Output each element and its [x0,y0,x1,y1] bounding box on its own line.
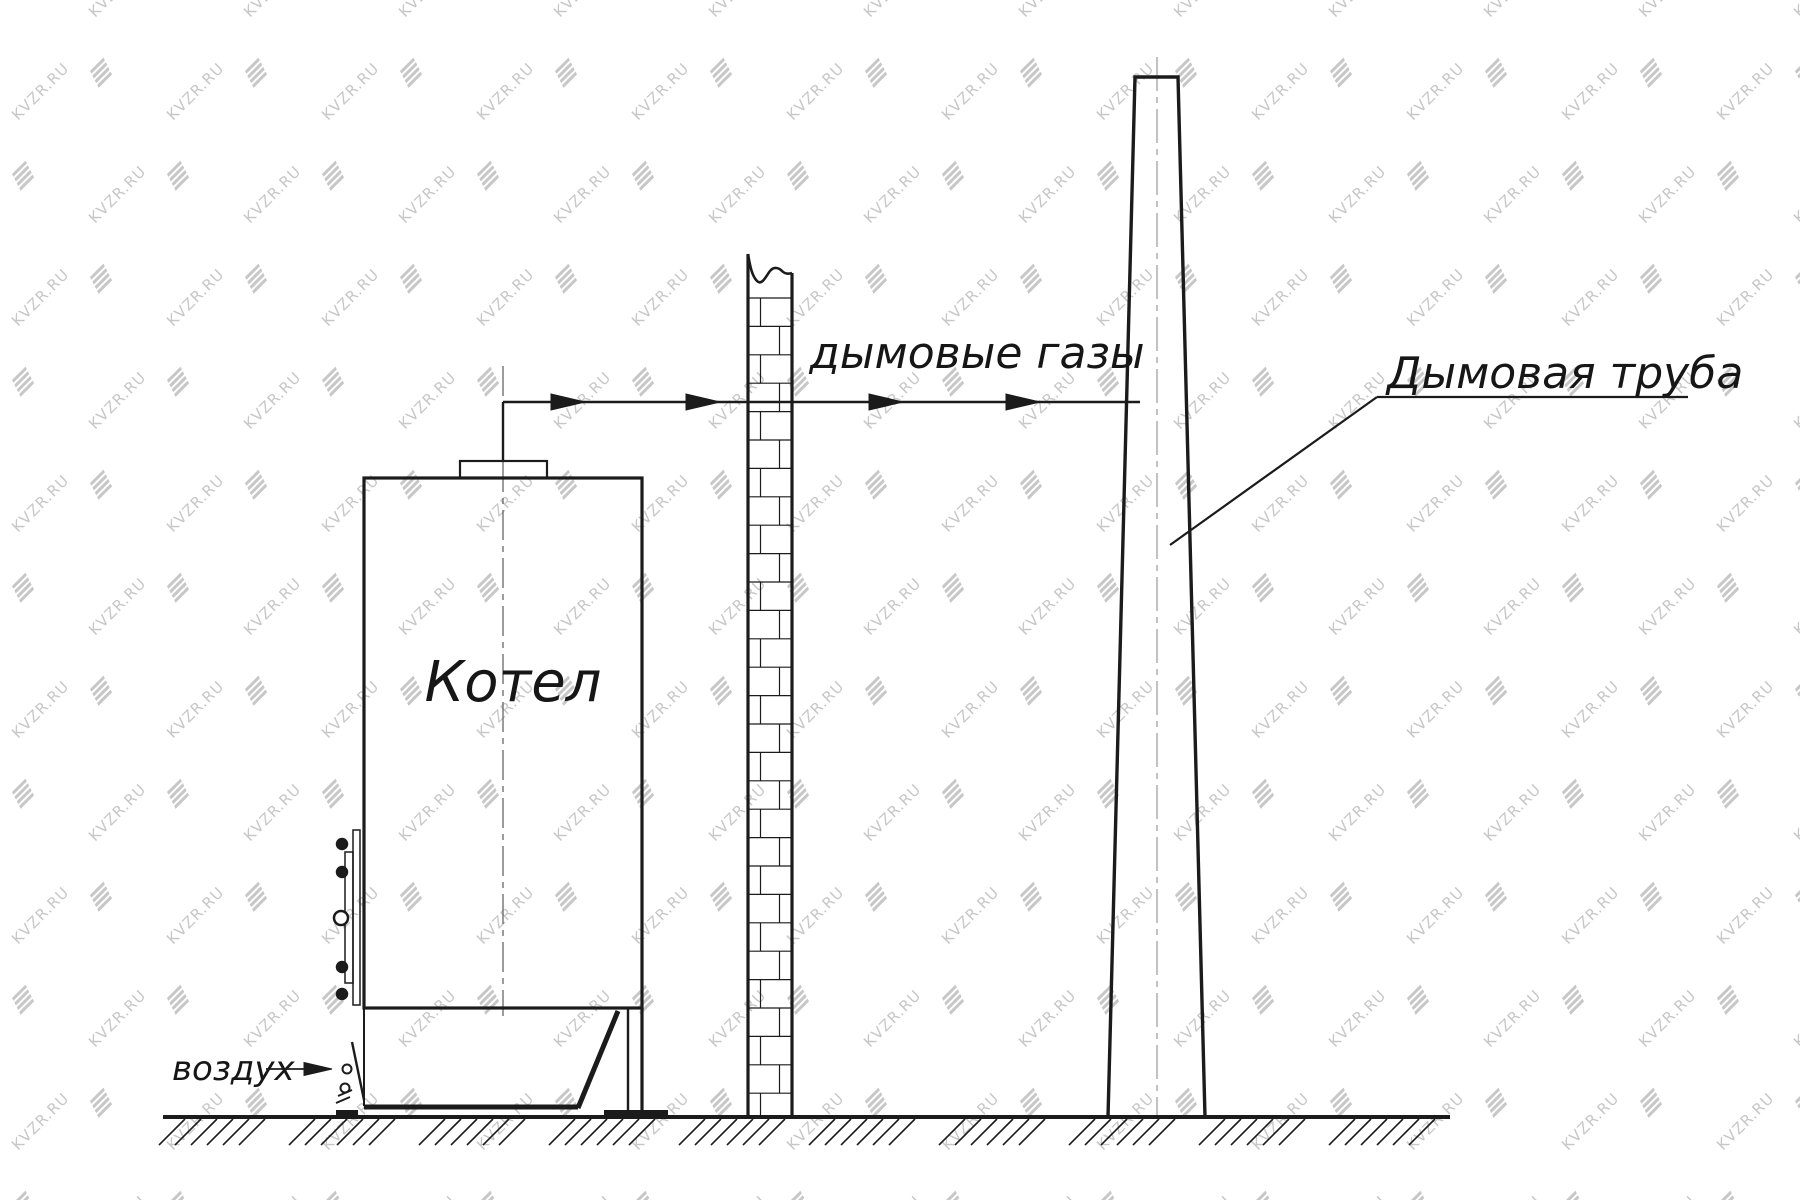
watermark-text: KVZR.RU [1015,986,1080,1051]
ground-hatch-stroke [987,1119,1013,1145]
watermark-logo-icon [90,1088,112,1118]
watermark-logo-icon [400,264,422,294]
ground-hatch-stroke [711,1119,737,1145]
watermark-logo-icon [1562,161,1584,191]
watermark-logo-icon [555,264,577,294]
watermark-logo-icon [1485,676,1507,706]
ground-hatch-stroke [825,1119,851,1145]
watermark-text: KVZR.RU [1480,986,1545,1051]
watermark-text: KVZR.RU [395,574,460,639]
watermark-text: KVZR.RU [1325,574,1390,639]
watermark-logo-icon [322,161,344,191]
watermark-text: KVZR.RU [1635,780,1700,845]
watermark-text: KVZR.RU [1790,986,1800,1051]
watermark-text: KVZR.RU [395,1192,460,1200]
watermark-logo-icon [787,367,809,397]
door-handle [334,911,348,925]
ground-hatch-stroke [597,1119,623,1145]
watermark-text: KVZR.RU [1093,59,1158,124]
ground-hatch-stroke [207,1119,233,1145]
watermark-logo-icon [477,573,499,603]
watermark-logo-icon [245,882,267,912]
watermark-logo-icon [1020,1088,1042,1118]
watermark-text: KVZR.RU [395,780,460,845]
watermark-text: KVZR.RU [473,883,538,948]
watermark-logo-icon [1252,367,1274,397]
watermark-logo-icon [12,573,34,603]
watermark-logo-icon [90,882,112,912]
watermark-text: KVZR.RU [240,368,305,433]
watermark-text: KVZR.RU [1403,471,1468,536]
watermark-text: KVZR.RU [1325,162,1390,227]
watermark-logo-icon [1175,264,1197,294]
watermark-logo-icon [90,264,112,294]
watermark-text: KVZR.RU [473,265,538,330]
watermark-logo-icon [1097,161,1119,191]
watermark-text: KVZR.RU [85,0,150,21]
watermark-text: KVZR.RU [1790,780,1800,845]
watermark-logo-icon [12,161,34,191]
smoke-arrowhead [686,394,720,410]
watermark-logo-icon [1407,1191,1429,1200]
watermark-logo-icon [400,1088,422,1118]
watermark-logo-icon [477,367,499,397]
watermark-text: KVZR.RU [1403,265,1468,330]
watermark-text: KVZR.RU [1093,265,1158,330]
watermark-text: KVZR.RU [628,471,693,536]
watermark-text: KVZR.RU [860,780,925,845]
watermark-logo-icon [1717,573,1739,603]
watermark-logo-icon [1795,58,1800,88]
watermark-logo-icon [1175,1088,1197,1118]
watermark-logo-icon [787,779,809,809]
watermark-text: KVZR.RU [550,1192,615,1200]
ground-hatch-stroke [873,1119,899,1145]
watermark-logo-icon [710,1088,732,1118]
watermark-logo-icon [1717,985,1739,1015]
watermark-logo-icon [710,882,732,912]
watermark-logo-icon [90,58,112,88]
watermark-logo-icon [322,367,344,397]
watermark-text: KVZR.RU [163,883,228,948]
watermark-logo-icon [632,161,654,191]
watermark-text: KVZR.RU [1635,574,1700,639]
watermark-logo-icon [167,573,189,603]
watermark-text: KVZR.RU [1713,1089,1778,1154]
watermark-text: KVZR.RU [1558,265,1623,330]
ground-hatch-stroke [759,1119,785,1145]
watermark-text: KVZR.RU [705,162,770,227]
watermark-text: KVZR.RU [1325,368,1390,433]
watermark-logo-icon [942,985,964,1015]
ground-hatch-stroke [581,1119,607,1145]
watermark-logo-icon [1407,573,1429,603]
watermark-text: KVZR.RU [1713,265,1778,330]
watermark-text: KVZR.RU [1790,368,1800,433]
watermark-text: KVZR.RU [860,1192,925,1200]
watermark-text: KVZR.RU [395,0,460,21]
watermark-logo-icon [1252,573,1274,603]
watermark-text: KVZR.RU [85,780,150,845]
watermark-text: KVZR.RU [1248,265,1313,330]
ground-hatch-stroke [1003,1119,1029,1145]
watermark-text: KVZR.RU [1170,1192,1235,1200]
watermark-logo-icon [322,573,344,603]
watermark-text: KVZR.RU [8,883,73,948]
watermark-text: KVZR.RU [1558,59,1623,124]
watermark-logo-icon [167,985,189,1015]
ground-hatch-stroke [549,1119,575,1145]
watermark-logo-icon [1485,58,1507,88]
watermark-logo-icon [1330,882,1352,912]
watermark-logo-icon [1795,470,1800,500]
watermark-logo-icon [90,470,112,500]
watermark-logo-icon [942,573,964,603]
watermark-text: KVZR.RU [473,59,538,124]
watermark-logo-icon [167,367,189,397]
watermark-text: KVZR.RU [1015,780,1080,845]
watermark-text: KVZR.RU [1480,780,1545,845]
watermark-logo-icon [1640,882,1662,912]
ground-hatch-stroke [565,1119,591,1145]
watermark-text: KVZR.RU [395,162,460,227]
watermark-text: KVZR.RU [1325,0,1390,21]
watermark-logo-icon [1407,161,1429,191]
watermark-logo-icon [1562,779,1584,809]
watermark-logo-icon [942,779,964,809]
watermark-text: KVZR.RU [1558,471,1623,536]
watermark-text: KVZR.RU [1170,368,1235,433]
watermark-logo-icon [1330,264,1352,294]
watermark-logo-icon [477,985,499,1015]
watermark-text: KVZR.RU [1093,677,1158,742]
watermark-text: KVZR.RU [318,677,383,742]
watermark-text: KVZR.RU [938,883,1003,948]
watermark-logo-icon [1485,882,1507,912]
watermark-logo-icon [710,58,732,88]
watermark-logo-icon [167,161,189,191]
watermark-logo-icon [1640,1088,1662,1118]
ground-hatch-stroke [857,1119,883,1145]
watermark-logo-icon [245,58,267,88]
watermark-text: KVZR.RU [1790,0,1800,21]
watermark-logo-icon [787,985,809,1015]
watermark-text: KVZR.RU [395,368,460,433]
watermark-logo-icon [1640,264,1662,294]
watermark-text: KVZR.RU [1635,0,1700,21]
watermark-text: KVZR.RU [1325,780,1390,845]
watermark-logo-icon [555,470,577,500]
watermark-text: KVZR.RU [1403,59,1468,124]
ground-hatch-stroke [1329,1119,1355,1145]
watermark-text: KVZR.RU [1015,1192,1080,1200]
watermark-text: KVZR.RU [85,574,150,639]
watermark-text: KVZR.RU [1325,1192,1390,1200]
boiler-chimney-technical-diagram: KVZR.RUKVZR.RUKVZR.RUKVZR.RUKVZR.RUKVZR.… [0,0,1800,1200]
watermark-logo-icon [1175,470,1197,500]
watermark-logo-icon [1640,470,1662,500]
ground-hatch-stroke [223,1119,249,1145]
boiler-label: Котел [425,650,602,715]
watermark-logo-icon [12,985,34,1015]
watermark-logo-icon [1330,58,1352,88]
watermark-text: KVZR.RU [860,574,925,639]
ground-hatch-stroke [1215,1119,1241,1145]
watermark-logo-icon [865,470,887,500]
watermark-text: KVZR.RU [318,265,383,330]
watermark-logo-icon [555,882,577,912]
ground-hatch-stroke [889,1119,915,1145]
watermark-logo-icon [1330,1088,1352,1118]
watermark-text: KVZR.RU [1635,1192,1700,1200]
watermark-text: KVZR.RU [240,162,305,227]
ground-hatch-stroke [1149,1119,1175,1145]
watermark-text: KVZR.RU [1790,162,1800,227]
watermark-logo-icon [1717,161,1739,191]
watermark-text: KVZR.RU [938,59,1003,124]
ground-hatch-stroke [289,1119,315,1145]
watermark-text: KVZR.RU [1170,574,1235,639]
watermark-text: KVZR.RU [1248,677,1313,742]
watermark-logo-icon [710,264,732,294]
watermark-text: KVZR.RU [1248,471,1313,536]
ground-hatch-stroke [1199,1119,1225,1145]
chimney-label: Дымовая труба [1385,348,1743,399]
watermark-logo-icon [1795,882,1800,912]
watermark-logo-icon [1097,985,1119,1015]
watermark-logo-icon [1485,470,1507,500]
watermark-logo-icon [787,573,809,603]
watermark-text: KVZR.RU [1015,574,1080,639]
watermark-logo-icon [1640,676,1662,706]
watermark-logo-icon [322,1191,344,1200]
watermark-text: KVZR.RU [1713,883,1778,948]
watermark-text: KVZR.RU [1790,574,1800,639]
watermark-text: KVZR.RU [1480,0,1545,21]
watermark-logo-icon [1330,676,1352,706]
ground-hatch-stroke [727,1119,753,1145]
ground-hatch-stroke [435,1119,461,1145]
watermark-text: KVZR.RU [628,1089,693,1154]
ground-hatch-stroke [743,1119,769,1145]
watermark-logo-icon [1252,161,1274,191]
watermark-text: KVZR.RU [938,1089,1003,1154]
air-damper [336,1042,364,1103]
watermark-logo-icon [787,161,809,191]
watermark-text: KVZR.RU [240,1192,305,1200]
watermark-text: KVZR.RU [318,471,383,536]
watermark-text: KVZR.RU [1170,0,1235,21]
watermark-logo-icon [1562,573,1584,603]
watermark-text: KVZR.RU [860,0,925,21]
watermark-logo-icon [1020,470,1042,500]
ground-hatch-stroke [1345,1119,1371,1145]
watermark-text: KVZR.RU [1480,162,1545,227]
watermark-text: KVZR.RU [1635,986,1700,1051]
watermark-logo-icon [90,676,112,706]
watermark-text: KVZR.RU [1403,677,1468,742]
watermark-text: KVZR.RU [85,1192,150,1200]
watermark-text: KVZR.RU [395,986,460,1051]
watermark-text: KVZR.RU [473,471,538,536]
watermark-text: KVZR.RU [163,471,228,536]
watermark-logo-icon [245,264,267,294]
watermark-text: KVZR.RU [1480,574,1545,639]
watermark-logo-icon [1020,676,1042,706]
watermark-text: KVZR.RU [1325,986,1390,1051]
watermark-logo-icon [245,1088,267,1118]
watermark-logo-icon [555,58,577,88]
watermark-text: KVZR.RU [1015,0,1080,21]
watermark-text: KVZR.RU [550,574,615,639]
watermark-text: KVZR.RU [318,883,383,948]
watermark-text: KVZR.RU [8,471,73,536]
watermark-logo-icon [322,779,344,809]
watermark-logo-icon [1020,58,1042,88]
ground-hatch-stroke [1069,1119,1095,1145]
watermark-logo-icon [477,161,499,191]
ground-hatch-stroke [1133,1119,1159,1145]
watermark-text: KVZR.RU [1558,883,1623,948]
watermark-text: KVZR.RU [550,162,615,227]
watermark-text: KVZR.RU [1558,677,1623,742]
watermark-logo-icon [1795,676,1800,706]
watermark-text: KVZR.RU [85,368,150,433]
watermark-logo-icon [865,1088,887,1118]
boiler-base [336,1008,668,1113]
watermark-text: KVZR.RU [783,59,848,124]
watermark-text: KVZR.RU [550,780,615,845]
watermark-text: KVZR.RU [1015,162,1080,227]
watermark-logo-icon [1407,985,1429,1015]
watermark-logo-icon [1175,882,1197,912]
watermark-text: KVZR.RU [1093,883,1158,948]
watermark-text: KVZR.RU [705,1192,770,1200]
watermark-logo-icon [245,470,267,500]
watermark-logo-icon [1407,779,1429,809]
watermark-text: KVZR.RU [628,265,693,330]
ground-hatch-stroke [695,1119,721,1145]
watermark-text: KVZR.RU [240,0,305,21]
ground-hatch-stroke [1361,1119,1387,1145]
watermark-logo-icon [942,1191,964,1200]
watermark-logo-icon [245,676,267,706]
watermark-logo-icon [555,1088,577,1118]
watermark-logo-icon [1097,1191,1119,1200]
watermark-text: KVZR.RU [8,677,73,742]
ground-hatch-stroke [419,1119,445,1145]
watermark-logo-icon [1795,264,1800,294]
watermark-text: KVZR.RU [1248,59,1313,124]
watermark-text: KVZR.RU [85,162,150,227]
watermark-logo-icon [12,367,34,397]
watermark-logo-icon [1640,58,1662,88]
watermark-logo-icon [477,779,499,809]
watermark-text: KVZR.RU [163,59,228,124]
watermark-text: KVZR.RU [550,0,615,21]
watermark-text: KVZR.RU [1170,780,1235,845]
watermark-logo-icon [710,470,732,500]
watermark-logo-icon [1252,779,1274,809]
air-arrowhead [304,1063,332,1076]
watermark-logo-icon [632,367,654,397]
ground-hatch-stroke [369,1119,395,1145]
watermark-logo-icon [1330,470,1352,500]
watermark-text: KVZR.RU [318,59,383,124]
watermark-logo-icon [710,676,732,706]
watermark-logo-icon [477,1191,499,1200]
watermark-layer: KVZR.RUKVZR.RUKVZR.RUKVZR.RUKVZR.RUKVZR.… [0,0,1800,1200]
watermark-text: KVZR.RU [628,59,693,124]
watermark-logo-icon [865,264,887,294]
watermark-text: KVZR.RU [1558,1089,1623,1154]
watermark-logo-icon [400,882,422,912]
watermark-text: KVZR.RU [705,0,770,21]
ground-hatch-stroke [1019,1119,1045,1145]
watermark-logo-icon [400,676,422,706]
watermark-logo-icon [1562,985,1584,1015]
watermark-logo-icon [400,58,422,88]
watermark-text: KVZR.RU [163,677,228,742]
watermark-logo-icon [632,1191,654,1200]
watermark-logo-icon [12,1191,34,1200]
watermark-text: KVZR.RU [240,574,305,639]
watermark-text: KVZR.RU [163,265,228,330]
wall-break-edge [748,254,792,282]
watermark-text: KVZR.RU [628,677,693,742]
watermark-logo-icon [1485,264,1507,294]
watermark-logo-icon [1020,882,1042,912]
watermark-text: KVZR.RU [628,883,693,948]
watermark-logo-icon [12,779,34,809]
smoke-gases-label: дымовые газы [808,328,1144,379]
ground-hatch-stroke [1377,1119,1403,1145]
watermark-text: KVZR.RU [1248,883,1313,948]
watermark-logo-icon [1795,1088,1800,1118]
watermark-text: KVZR.RU [1403,1089,1468,1154]
watermark-text: KVZR.RU [938,471,1003,536]
watermark-logo-icon [1717,779,1739,809]
watermark-logo-icon [865,882,887,912]
ground-hatch-stroke [679,1119,705,1145]
watermark-text: KVZR.RU [8,265,73,330]
watermark-logo-icon [1485,1088,1507,1118]
watermark-text: KVZR.RU [938,677,1003,742]
watermark-text: KVZR.RU [938,265,1003,330]
watermark-text: KVZR.RU [1403,883,1468,948]
watermark-text: KVZR.RU [85,986,150,1051]
ground-hatch-stroke [841,1119,867,1145]
watermark-logo-icon [1562,1191,1584,1200]
ground-hatch-stroke [239,1119,265,1145]
boiler [334,366,668,1113]
watermark-text: KVZR.RU [1713,59,1778,124]
watermark-text: KVZR.RU [163,1089,228,1154]
watermark-text: KVZR.RU [8,1089,73,1154]
watermark-logo-icon [942,161,964,191]
watermark-text: KVZR.RU [860,162,925,227]
watermark-text: KVZR.RU [1713,677,1778,742]
watermark-logo-icon [167,779,189,809]
watermark-text: KVZR.RU [240,780,305,845]
watermark-logo-icon [1020,264,1042,294]
watermark-text: KVZR.RU [1790,1192,1800,1200]
watermark-logo-icon [167,1191,189,1200]
watermark-logo-icon [1252,1191,1274,1200]
watermark-logo-icon [787,1191,809,1200]
watermark-text: KVZR.RU [1480,1192,1545,1200]
watermark-text: KVZR.RU [8,59,73,124]
